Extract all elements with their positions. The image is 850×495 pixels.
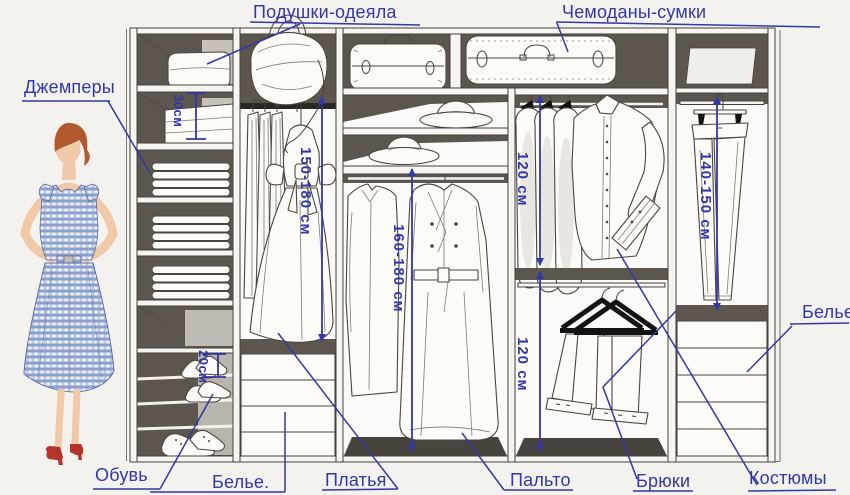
label-linen-right: Белье: [802, 302, 850, 323]
folded-jumpers-stack-3: [152, 266, 230, 299]
label-suitcases-bags: Чемоданы-сумки: [562, 2, 706, 23]
measurement-120cm-top: 120 см: [514, 152, 531, 207]
label-linen-bottom: Белье.: [212, 472, 269, 493]
woman-figure-illustration: [24, 123, 114, 465]
measurement-140-150cm: 140-150 см: [697, 152, 714, 241]
label-jumpers: Джемперы: [24, 77, 115, 98]
suitcase-drawing-2: [466, 36, 616, 84]
measurement-160-180cm: 160-180 см: [390, 224, 407, 313]
suitcase-shelf: [343, 33, 668, 90]
label-trousers: Брюки: [636, 471, 690, 492]
drawers-right: [677, 321, 767, 456]
wardrobe-drawing: [0, 0, 850, 495]
measurement-150-180cm: 150-180 см: [297, 147, 314, 236]
measurement-120cm-bottom: 120 см: [514, 337, 531, 392]
wardrobe-organization-diagram: Подушки-одеяла Чемоданы-сумки Джемперы О…: [0, 0, 850, 495]
label-dresses: Платья: [325, 470, 387, 491]
measurement-20cm: 20см: [196, 350, 211, 383]
label-pillows-blankets: Подушки-одеяла: [253, 2, 397, 23]
label-coats: Пальто: [510, 470, 571, 491]
drawers-under-dresses: [241, 354, 335, 457]
label-suits: Костюмы: [749, 468, 827, 489]
folded-jumpers-stack-1: [152, 163, 230, 196]
pillow-drawing: [168, 52, 230, 87]
label-shoes: Обувь: [95, 465, 148, 486]
measurement-30cm: 30см: [171, 94, 186, 127]
trouser-rod: [680, 101, 764, 105]
folded-jumpers-stack-2: [152, 216, 230, 249]
red-shoes: [46, 444, 83, 465]
